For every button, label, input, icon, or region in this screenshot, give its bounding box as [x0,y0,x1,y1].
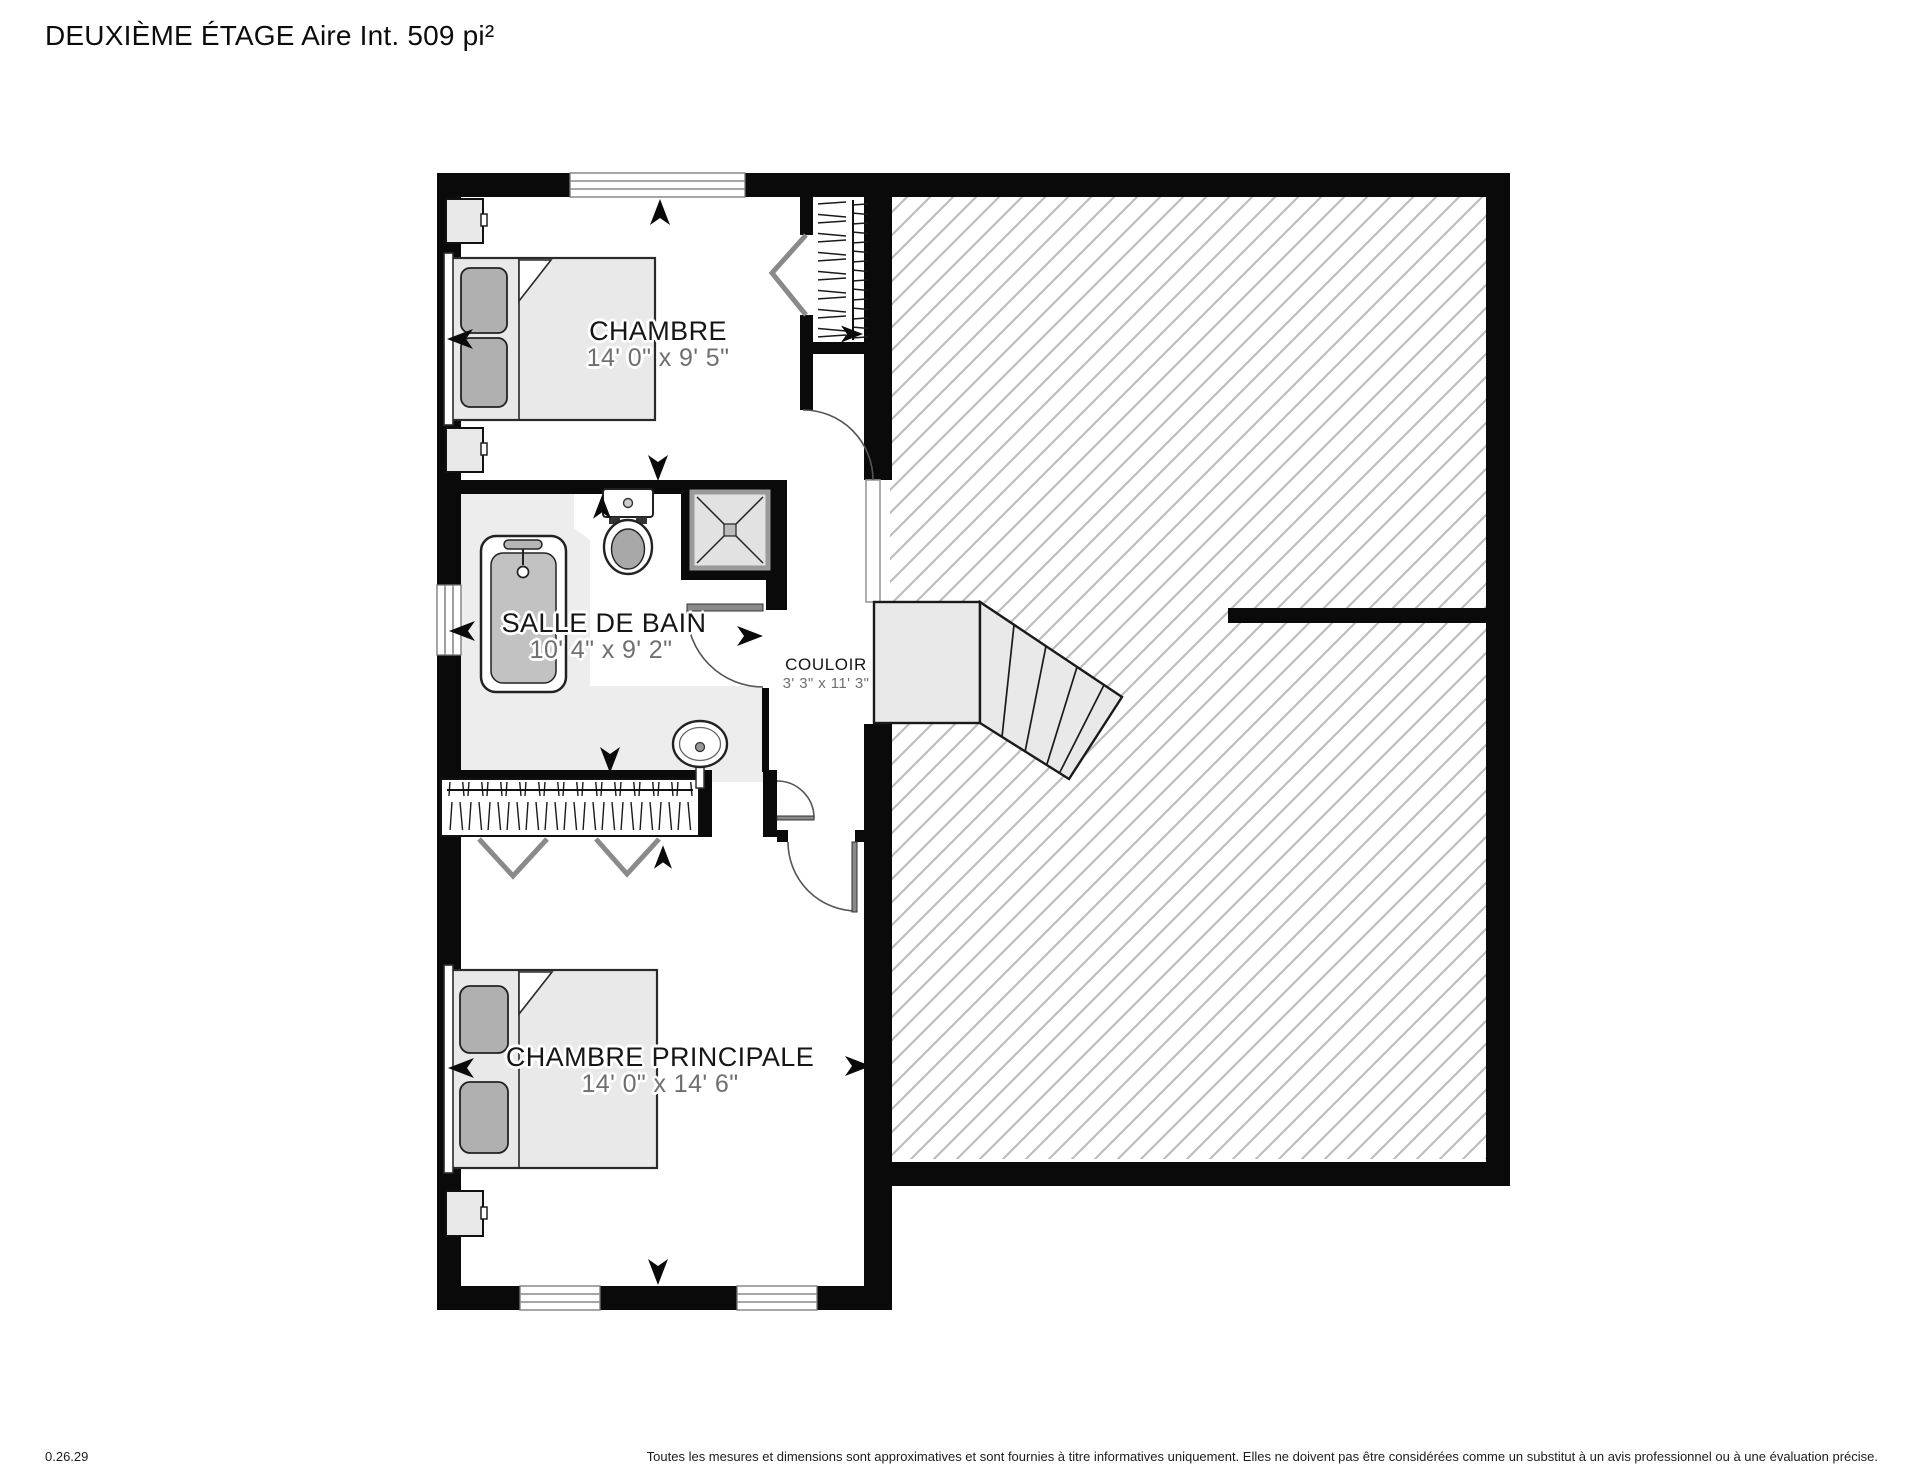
drain [518,567,529,578]
floorplan-drawing [0,0,1920,1483]
footer-version: 0.26.29 [45,1449,88,1464]
toilet [603,489,653,574]
stair-landing [874,602,980,723]
wall-bottom-attic [864,1162,1510,1186]
page-title: DEUXIÈME ÉTAGE Aire Int. 509 pi² [45,20,494,52]
wall-closet-top-left-stub2 [800,315,813,354]
wall-chambre-couloir [800,354,813,410]
wall-closet-top-bottom [800,342,892,354]
window-chambre-top [570,173,745,197]
closet-chambre [772,198,868,341]
bifold-door [772,235,806,315]
footer-disclaimer: Toutes les mesures et dimensions sont ap… [647,1449,1878,1464]
faucet [504,540,542,549]
wall-attic-partial [1228,608,1487,623]
wall-pillar-vestibule-right [763,770,777,837]
arrow-down-icon [648,1259,668,1285]
room-dims-chambre: 14' 0" x 9' 5" [587,344,730,373]
wall-divider-lower [864,724,892,1310]
sink-faucet [696,743,705,752]
wall-corridor-stub-left [777,830,788,842]
arrow-down-icon [648,455,668,481]
bifold-door [479,839,547,876]
stair-railing [866,480,880,602]
door-arc-vestibule [777,781,814,818]
nightstand-principale [446,1191,487,1236]
room-label-couloir: COULOIR [785,655,867,675]
wall-closet-top-left-stub1 [800,197,813,235]
arrow-up-icon [650,199,670,225]
door-leaf-vestibule [777,816,814,820]
door-arc-principale [788,842,857,911]
arrow-right-icon [737,626,763,646]
room-dims-salle-de-bain: 10' 4" x 9' 2" [530,636,673,665]
room-dims-couloir: 3' 3" x 11' 3" [783,675,870,692]
arrow-up-icon [654,845,672,868]
door-arc-chambre [803,410,873,480]
wall-right [1486,173,1510,1186]
wall-bottom-left-wing [437,1286,892,1310]
shower-drain [724,524,736,536]
window-principale-bottom-1 [520,1286,600,1310]
room-label-salle-de-bain: SALLE DE BAIN [502,608,707,639]
wall-bath-right-lower [762,688,769,772]
bifold-door [596,839,659,874]
room-label-chambre: CHAMBRE [589,316,727,347]
pillow [461,338,507,407]
pillow [460,1082,508,1153]
window-principale-bottom-2 [737,1286,817,1310]
wall-divider-upper [864,197,892,480]
shower [692,492,768,568]
floorplan-page: { "page": { "title": "DEUXIÈME ÉTAGE Air… [0,0,1920,1483]
window-bathroom-left [437,585,461,655]
room-label-chambre-principale: CHAMBRE PRINCIPALE [506,1042,814,1073]
pillow [460,986,508,1053]
wall-corridor-stub-right [855,830,866,842]
door-leaf-principale [852,842,857,912]
room-dims-chambre-principale: 14' 0" x 14' 6" [581,1070,738,1099]
pillow [461,268,507,333]
